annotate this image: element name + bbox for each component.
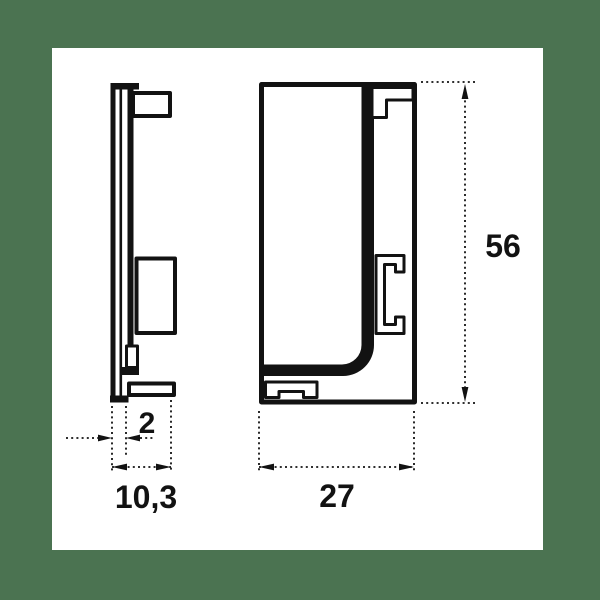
top-clip-side bbox=[133, 93, 170, 116]
page-background: { "page": { "background_color": "#4b7351… bbox=[0, 0, 600, 600]
dimension-label-height: 56 bbox=[485, 228, 521, 264]
bottom-clip-side bbox=[129, 384, 174, 396]
face-plate-inner-edge bbox=[120, 89, 123, 396]
dimension-label-width: 27 bbox=[319, 478, 355, 514]
side-profile-edge bbox=[128, 89, 134, 367]
middle-clip-side bbox=[137, 259, 176, 334]
technical-drawing: 2 10,3 27 56 bbox=[0, 0, 600, 600]
dimension-label-depth: 10,3 bbox=[115, 479, 177, 515]
cap-outline bbox=[262, 85, 415, 403]
front-view bbox=[262, 84, 415, 402]
side-slot bbox=[127, 346, 138, 368]
face-plate-outer-edge bbox=[111, 83, 116, 403]
dimension-label-thickness: 2 bbox=[139, 407, 156, 440]
side-bottom-foot bbox=[110, 396, 129, 403]
